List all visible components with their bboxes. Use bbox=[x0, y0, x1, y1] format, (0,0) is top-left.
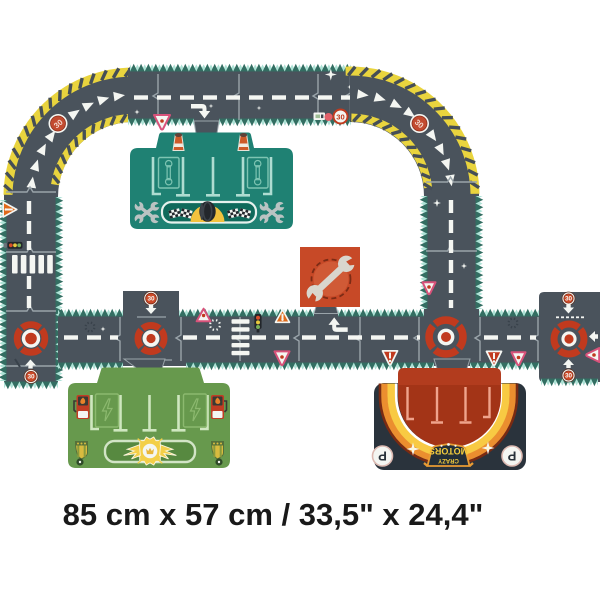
svg-text:30: 30 bbox=[565, 373, 573, 380]
svg-text:30: 30 bbox=[147, 296, 155, 303]
svg-text:CRAZY: CRAZY bbox=[438, 457, 459, 463]
svg-text:P: P bbox=[378, 449, 387, 464]
svg-text:P: P bbox=[507, 449, 516, 464]
svg-text:30: 30 bbox=[336, 112, 344, 121]
svg-text:85 cm x 57 cm / 33,5" x 24,4": 85 cm x 57 cm / 33,5" x 24,4" bbox=[63, 497, 484, 532]
svg-text:30: 30 bbox=[565, 296, 573, 303]
svg-text:MOTORS: MOTORS bbox=[429, 446, 468, 456]
svg-text:30: 30 bbox=[27, 374, 35, 381]
